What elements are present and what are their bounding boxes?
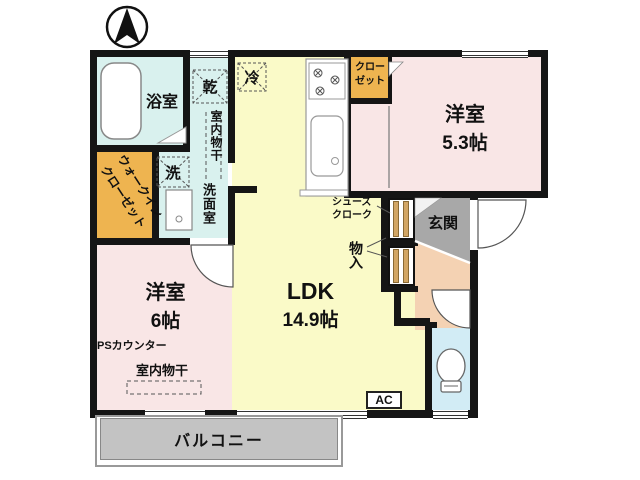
label-indoor-drying-bedroom: 室内物干 <box>136 360 206 376</box>
label-shoes-cloak: シューズ クローク <box>332 196 380 222</box>
wall <box>385 240 418 246</box>
shoes-line2: クローク <box>332 209 380 222</box>
floor-plan: 浴室 乾 冷 洗 室内物干 洗面室 ウォークイン クローゼット クロー ゼット … <box>0 0 640 480</box>
wall <box>367 410 433 418</box>
label-genkan: 玄関 <box>419 212 467 232</box>
label-indoor-drying-washroom: 室内物干 <box>203 110 225 184</box>
ldk-size: 14.9帖 <box>283 305 339 332</box>
label-balcony: バルコニー <box>100 418 338 460</box>
wall <box>388 57 392 98</box>
label-bath: 浴室 <box>132 90 192 110</box>
label-washroom: 洗面室 <box>196 183 218 255</box>
closet-door-stripe <box>393 201 399 237</box>
room-toilet <box>432 328 470 410</box>
window-bedroom53 <box>462 51 528 58</box>
wall <box>541 50 548 198</box>
wall <box>470 250 478 418</box>
wall <box>90 50 97 418</box>
wall <box>228 57 235 163</box>
label-bedroom6: 洋室 6帖 <box>108 276 223 336</box>
label-fridge: 冷 <box>238 63 266 91</box>
label-closet-line2: ゼット <box>352 75 388 89</box>
wall <box>425 322 437 328</box>
ac-unit-badge: AC <box>366 391 402 409</box>
ldk-name: LDK <box>287 278 334 306</box>
bedroom53-size: 5.3帖 <box>442 128 487 155</box>
wall <box>344 57 351 191</box>
bedroom6-name: 洋室 <box>146 280 186 306</box>
north-arrow-icon <box>107 7 147 47</box>
closet-door-stripe <box>393 249 399 283</box>
bedroom53-name: 洋室 <box>445 102 485 128</box>
shoes-cloak-closet <box>388 198 415 240</box>
door-arc-entrance <box>478 200 526 248</box>
wall <box>468 410 478 418</box>
label-closet-bedroom53: クロー ゼット <box>352 61 388 99</box>
label-bedroom53: 洋室 5.3帖 <box>395 96 535 160</box>
bedroom6-size: 6帖 <box>151 306 181 333</box>
label-ps-counter: PSカウンター <box>97 337 187 351</box>
wall <box>228 50 462 57</box>
window-toilet <box>433 411 468 419</box>
label-ldk: LDK 14.9帖 <box>258 276 363 334</box>
wall <box>228 186 235 245</box>
closet-door-stripe <box>403 249 409 283</box>
wall <box>228 186 257 193</box>
wall <box>425 322 432 418</box>
label-closet-line1: クロー <box>352 61 388 75</box>
shoes-line1: シューズ <box>332 196 380 209</box>
label-washer: 洗 <box>157 157 189 187</box>
window-washroom <box>190 51 228 58</box>
wall <box>90 50 190 57</box>
closet-door-stripe <box>403 201 409 237</box>
wall <box>470 191 478 200</box>
storage-closet <box>388 246 415 286</box>
label-dryer: 乾 <box>193 70 227 103</box>
